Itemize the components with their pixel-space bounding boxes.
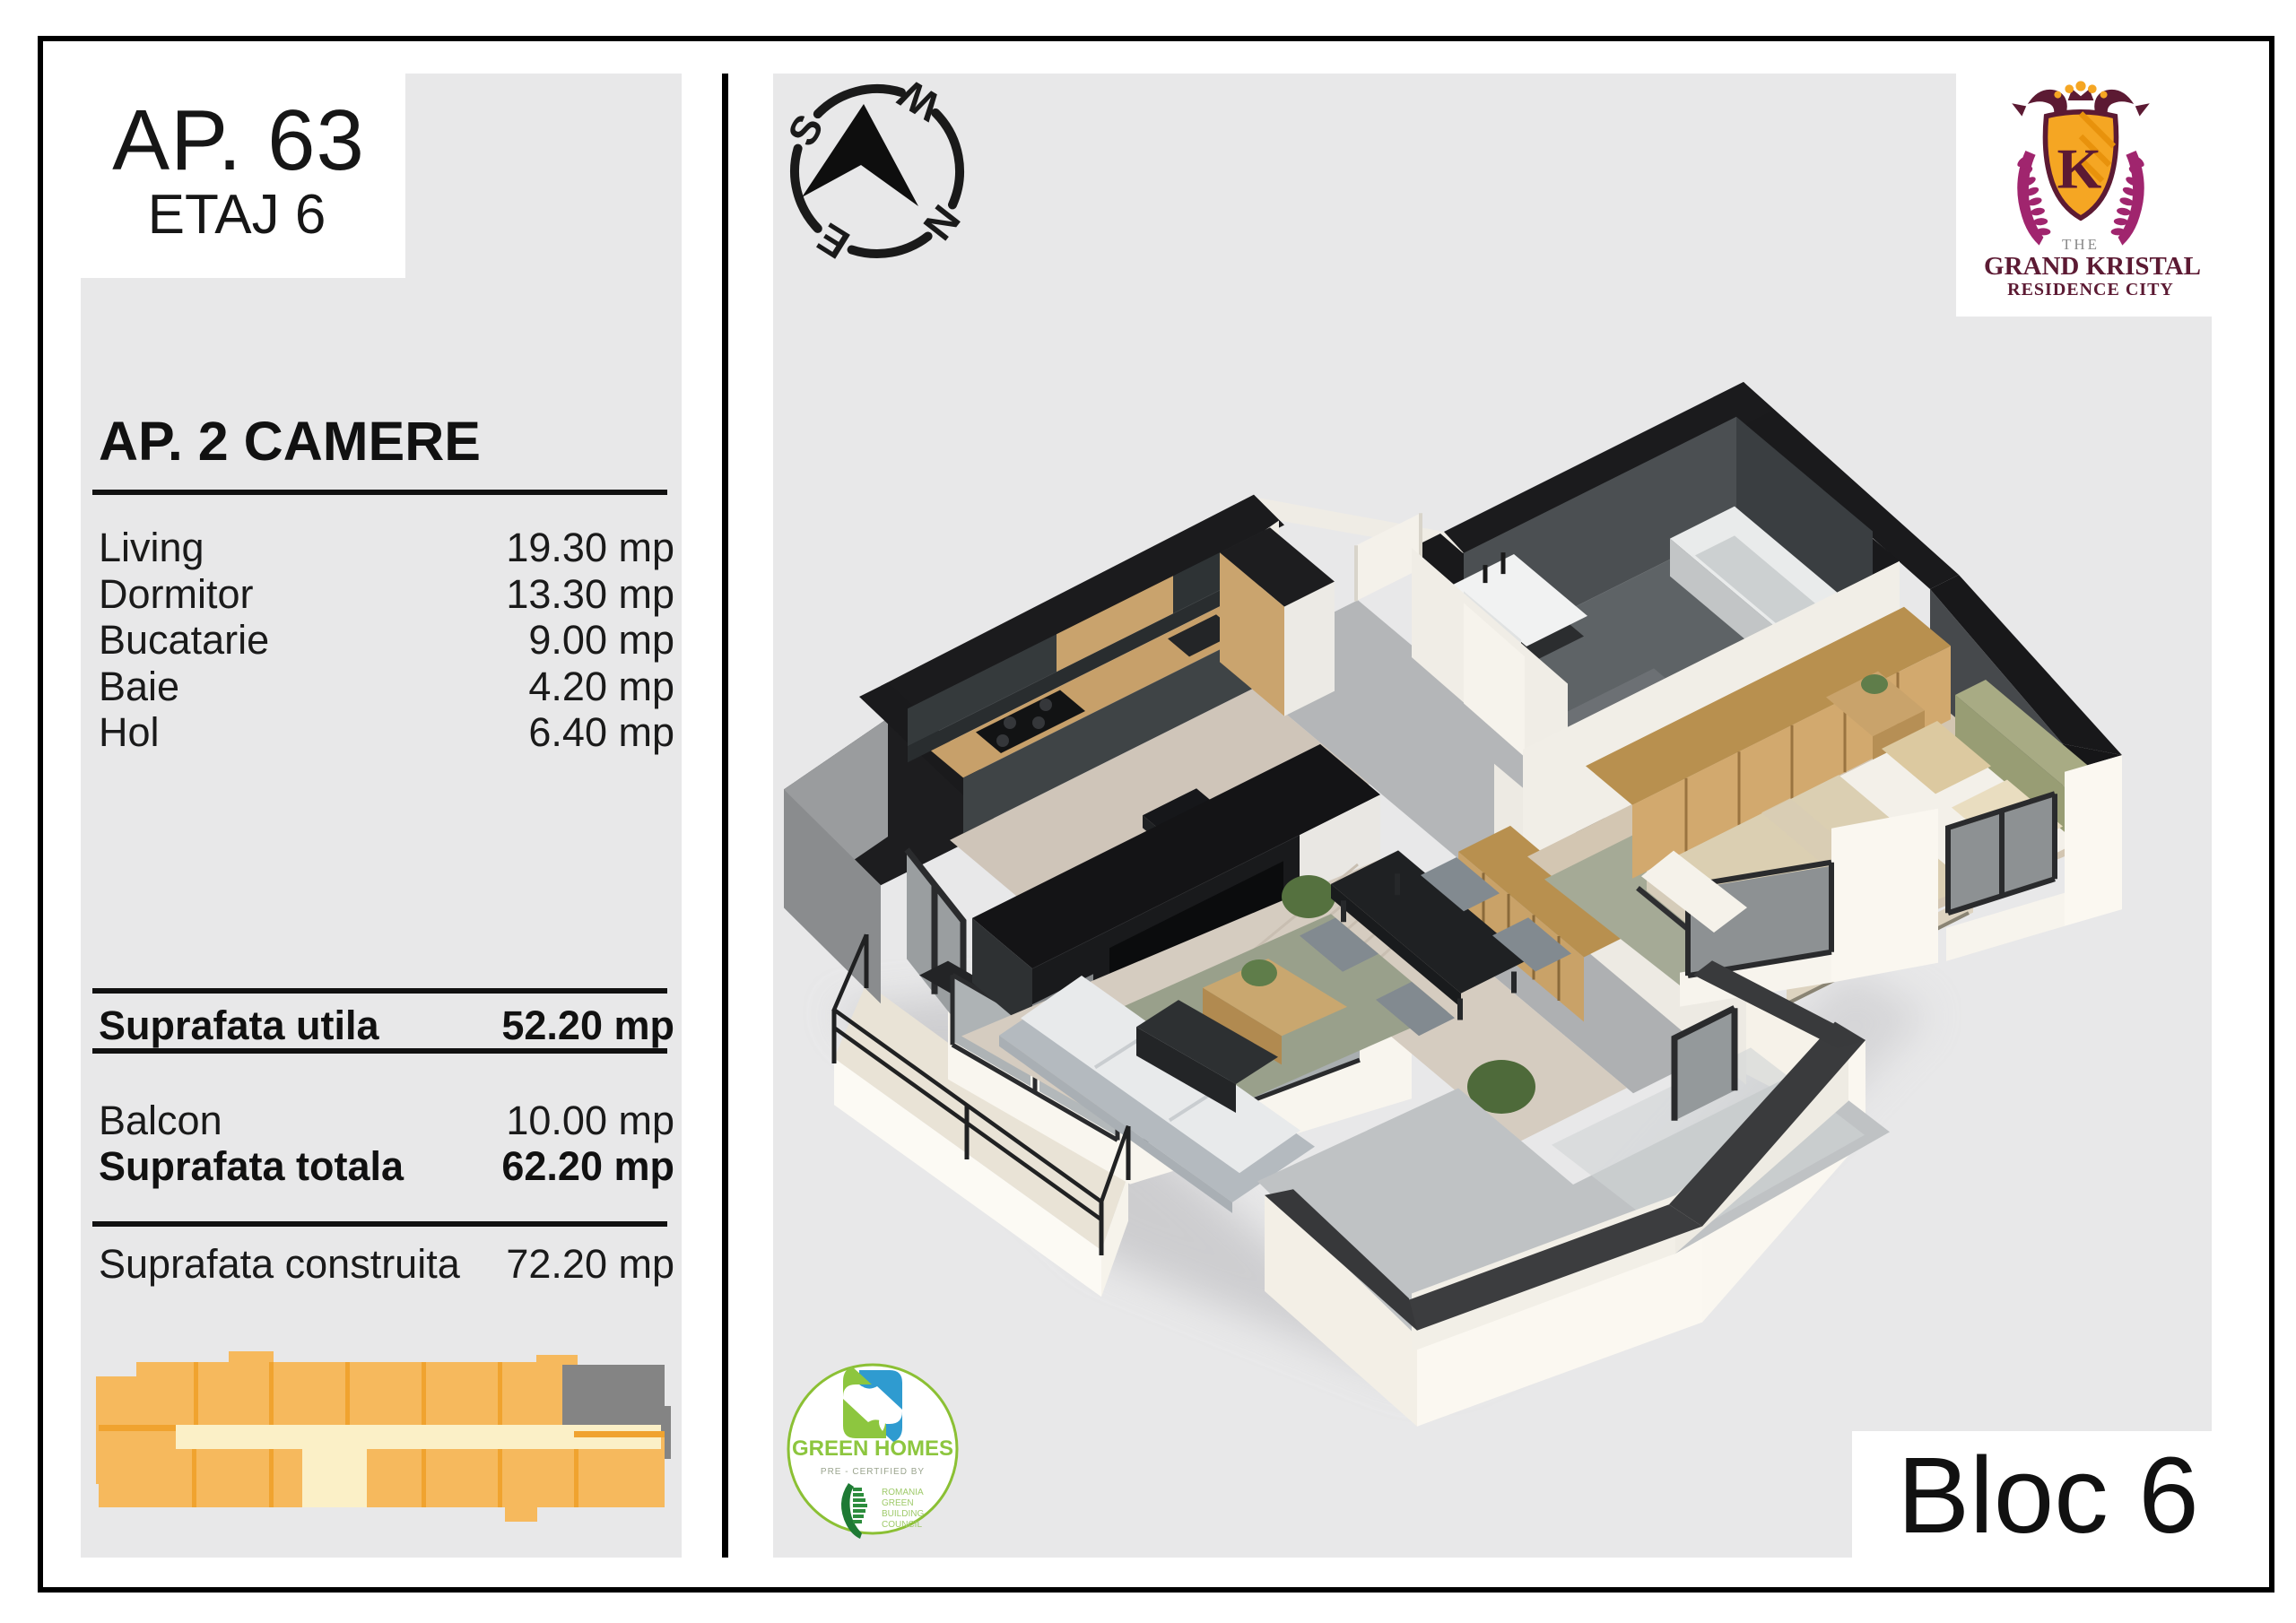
svg-text:GRAND KRISTAL: GRAND KRISTAL: [1984, 252, 2201, 281]
svg-text:ROMANIA: ROMANIA: [882, 1488, 924, 1497]
svg-text:GREEN: GREEN: [882, 1498, 914, 1508]
svg-text:K: K: [2057, 137, 2102, 201]
svg-text:THE: THE: [2062, 236, 2100, 253]
svg-text:GREEN HOMES: GREEN HOMES: [792, 1436, 953, 1461]
svg-text:BUILDING: BUILDING: [882, 1509, 924, 1519]
svg-text:PRE - CERTIFIED BY: PRE - CERTIFIED BY: [821, 1467, 925, 1477]
svg-text:RESIDENCE CITY: RESIDENCE CITY: [2007, 280, 2174, 299]
svg-text:COUNCIL: COUNCIL: [882, 1520, 922, 1530]
